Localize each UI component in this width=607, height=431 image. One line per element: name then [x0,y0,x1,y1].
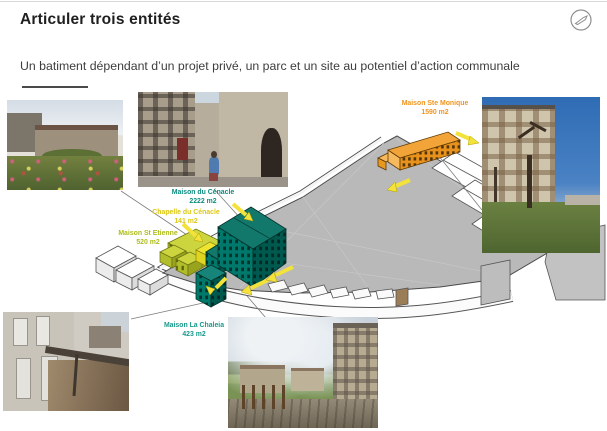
building-area: 1590 m2 [385,109,485,118]
photo-ste-monique [482,97,600,253]
photo-chaleia-far-building [89,326,122,348]
photo-cenacle-person-shorts [209,173,218,182]
building-chaleia-3d [196,265,226,307]
photo-cenacle-portal [261,128,282,177]
brown-gate [396,288,408,306]
label-maison-la-chaleia: Maison La Chaleia 423 m2 [146,322,242,340]
building-name: Maison Ste Monique [385,100,485,109]
label-maison-st-etienne: Maison St Etienne 520 m2 [100,230,196,248]
photo-monique-small-tree [494,167,498,201]
photo-cenacle-red-door [177,138,188,161]
label-maison-du-cenacle: Maison du Cénacle 2222 m2 [155,189,251,207]
photo-cenacle-person [209,157,220,174]
building-area: 423 m2 [146,331,242,340]
photo-chaleia-shutter [13,318,28,346]
building-name: Chapelle du Cénacle [138,209,234,218]
photo-monique-lawn [482,202,600,253]
neighbor-blocks-left [96,246,168,295]
label-chapelle-du-cenacle: Chapelle du Cénacle 141 m2 [138,209,234,227]
photo-cenacle-sky [192,92,222,103]
photo-chaleia-ground [48,360,129,411]
building-area: 141 m2 [138,218,234,227]
building-area: 2222 m2 [155,198,251,207]
building-area: 520 m2 [100,239,196,248]
photo-chaleia-courtyard [3,312,129,411]
photo-monique-tree-trunk [527,155,532,208]
photo-village-wood-fence [242,385,287,409]
building-name: Maison La Chaleia [146,322,242,331]
building-name: Maison St Etienne [100,230,196,239]
photo-village-view [228,317,378,428]
photo-cenacle-person-head [211,151,217,158]
photo-monique-road [565,195,600,204]
photo-cenacle-left-building [138,92,195,176]
photo-village-tall-building [333,323,378,408]
building-name: Maison du Cénacle [155,189,251,198]
label-maison-ste-monique: Maison Ste Monique 1590 m2 [385,100,485,118]
photo-garden [7,100,123,190]
photo-cenacle-facade [138,92,288,187]
photo-chaleia-door [16,358,32,400]
slide: Articuler trois entités Un batiment dépe… [0,0,607,431]
photo-village-house [291,368,324,391]
photo-chaleia-shutter [36,316,51,346]
photo-garden-flowerbed [7,156,123,190]
